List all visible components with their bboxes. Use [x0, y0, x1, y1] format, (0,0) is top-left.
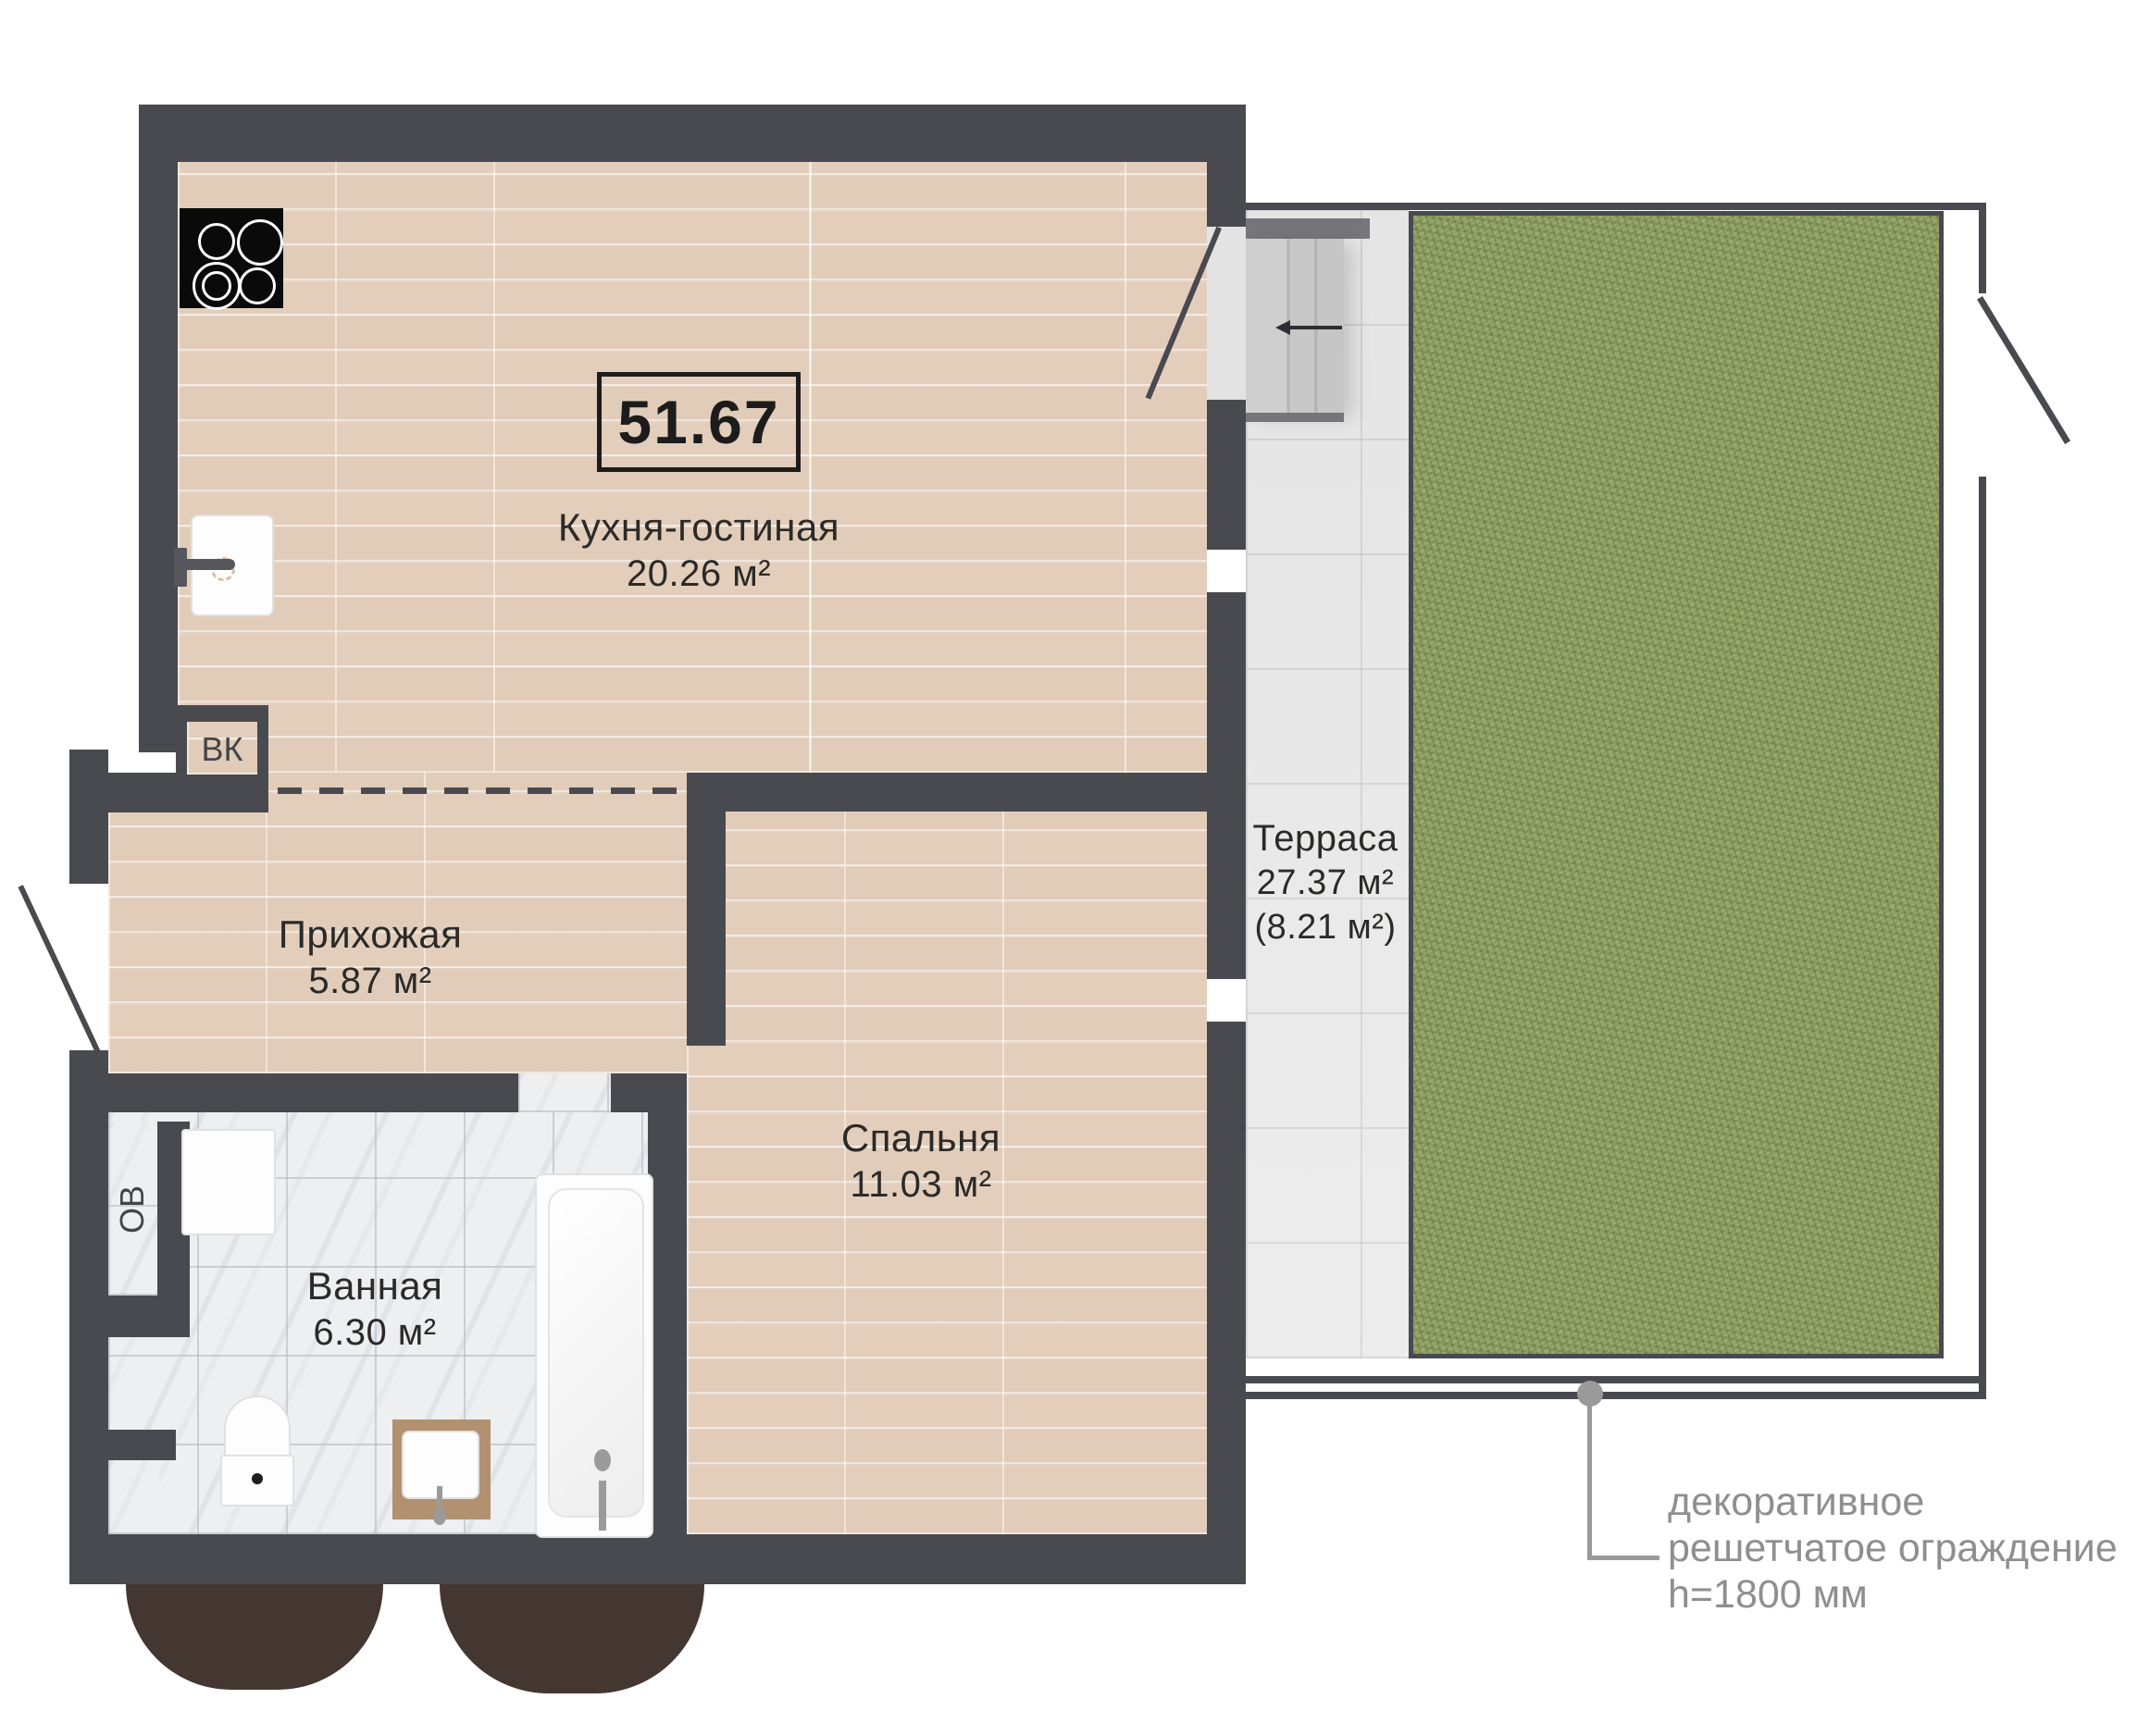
- wall-hall-bath-right: [611, 1073, 648, 1112]
- terrace-area-secondary: (8.21 м²): [1238, 905, 1412, 949]
- kitchen-area: 20.26 м²: [463, 551, 935, 597]
- fence-annotation-line2: решетчатое ограждение: [1668, 1525, 2149, 1571]
- fence-gate-leaf: [1977, 296, 2070, 444]
- toilet-button: [252, 1473, 263, 1484]
- ov-shaft-label: ОВ: [108, 1168, 157, 1251]
- wall-left-upper: [139, 105, 178, 752]
- window-bedroom: [1207, 979, 1246, 1022]
- hallway-name: Прихожая: [222, 911, 518, 958]
- wall-toilet-stub: [69, 1430, 176, 1460]
- tree-right: [440, 1584, 704, 1693]
- terrace-area: 27.37 м²: [1238, 861, 1412, 905]
- hallway-area: 5.87 м²: [222, 958, 518, 1004]
- fence-bottom-inner: [1246, 1392, 1979, 1399]
- washing-machine: [181, 1129, 276, 1235]
- hallway-label: Прихожая 5.87 м²: [222, 911, 518, 1004]
- fence-right-upper: [1979, 203, 1986, 293]
- bedroom-label: Спальня 11.03 м²: [773, 1115, 1069, 1208]
- kitchen-label: Кухня-гостиная 20.26 м²: [463, 504, 935, 597]
- bathtub-faucet-head: [594, 1449, 611, 1471]
- bathroom-door-floor: [518, 1073, 611, 1112]
- total-area-value: 51.67: [617, 387, 779, 457]
- terrace-label: Терраса 27.37 м² (8.21 м²): [1238, 816, 1412, 949]
- wall-bottom: [69, 1534, 1246, 1584]
- fence-bottom-outer: [1246, 1376, 1986, 1383]
- window-kitchen: [1207, 550, 1246, 592]
- wall-vk-band: [69, 773, 268, 812]
- bathtub-faucet-stem: [599, 1481, 606, 1531]
- wall-ov-bottom: [108, 1296, 190, 1337]
- stairs-landing-edge: [1246, 218, 1370, 239]
- zone-dashed-line: [278, 787, 687, 794]
- fence-annotation-line1: декоративное: [1668, 1479, 2149, 1525]
- ov-lower-floor: [108, 1460, 159, 1534]
- lawn: [1409, 211, 1944, 1358]
- fence-annotation: декоративное решетчатое ограждение h=180…: [1668, 1479, 2149, 1618]
- ov-shaft-text: ОВ: [113, 1185, 152, 1234]
- bathtub: [535, 1173, 653, 1538]
- bathroom-label: Ванная 6.30 м²: [227, 1263, 523, 1356]
- leader-horizontal: [1587, 1556, 1659, 1560]
- tree-left: [126, 1584, 383, 1690]
- kitchen-faucet-spout: [181, 559, 235, 570]
- wall-top: [139, 105, 1246, 162]
- total-area-box: 51.67: [597, 372, 801, 472]
- wall-left-lower: [69, 750, 108, 1534]
- wall-bath-bedroom: [648, 1073, 687, 1534]
- terrace-name: Терраса: [1238, 816, 1412, 861]
- bedroom-area: 11.03 м²: [773, 1161, 1069, 1208]
- vk-shaft-label: ВК: [187, 730, 257, 769]
- bathroom-area: 6.30 м²: [227, 1309, 523, 1356]
- stairs-direction-arrow-line: [1290, 326, 1342, 329]
- wall-kitchen-bedroom: [687, 773, 1207, 812]
- fence-top: [1246, 203, 1986, 210]
- bedroom-name: Спальня: [773, 1115, 1069, 1161]
- vanity-faucet-head: [433, 1508, 446, 1525]
- wall-hallway-bedroom: [687, 812, 726, 1046]
- wall-hall-bath-left: [108, 1073, 518, 1112]
- floor-plan: 51.67 Кухня-гостиная 20.26 м² Прихожая 5…: [0, 0, 2150, 1736]
- fence-annotation-line3: h=1800 мм: [1668, 1571, 2149, 1618]
- leader-vertical: [1587, 1394, 1592, 1560]
- stairs-bottom-edge: [1246, 413, 1344, 422]
- terrace-door-opening: [1207, 227, 1246, 400]
- vanity-counter: [392, 1420, 491, 1519]
- stairs-direction-arrow-head: [1275, 320, 1290, 335]
- stove-icon: [180, 208, 283, 308]
- fence-right-lower: [1979, 477, 1986, 1399]
- kitchen-name: Кухня-гостиная: [463, 504, 935, 551]
- bathroom-name: Ванная: [227, 1263, 523, 1309]
